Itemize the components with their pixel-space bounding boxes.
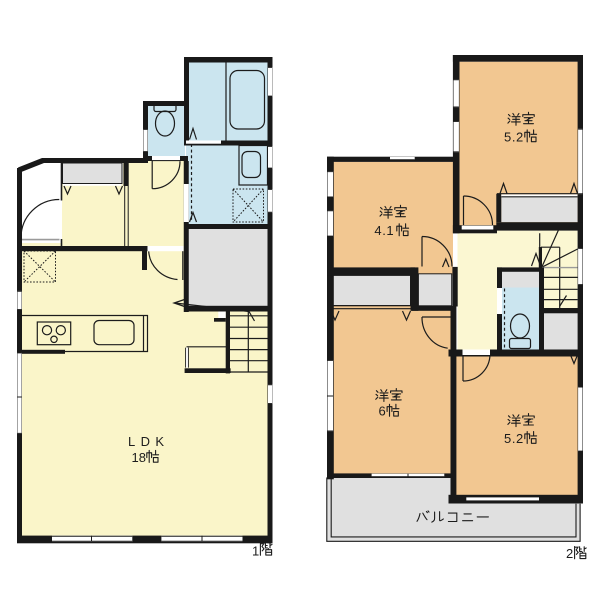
svg-text:4.1: 4.1 [374, 223, 394, 238]
svg-text:LDK: LDK [128, 434, 170, 449]
svg-text:5.2: 5.2 [504, 129, 524, 144]
svg-text:6: 6 [379, 404, 386, 419]
svg-text:18: 18 [132, 450, 146, 465]
svg-text:2: 2 [566, 546, 573, 561]
svg-text:5.2: 5.2 [504, 431, 524, 446]
svg-text:1: 1 [252, 544, 259, 559]
